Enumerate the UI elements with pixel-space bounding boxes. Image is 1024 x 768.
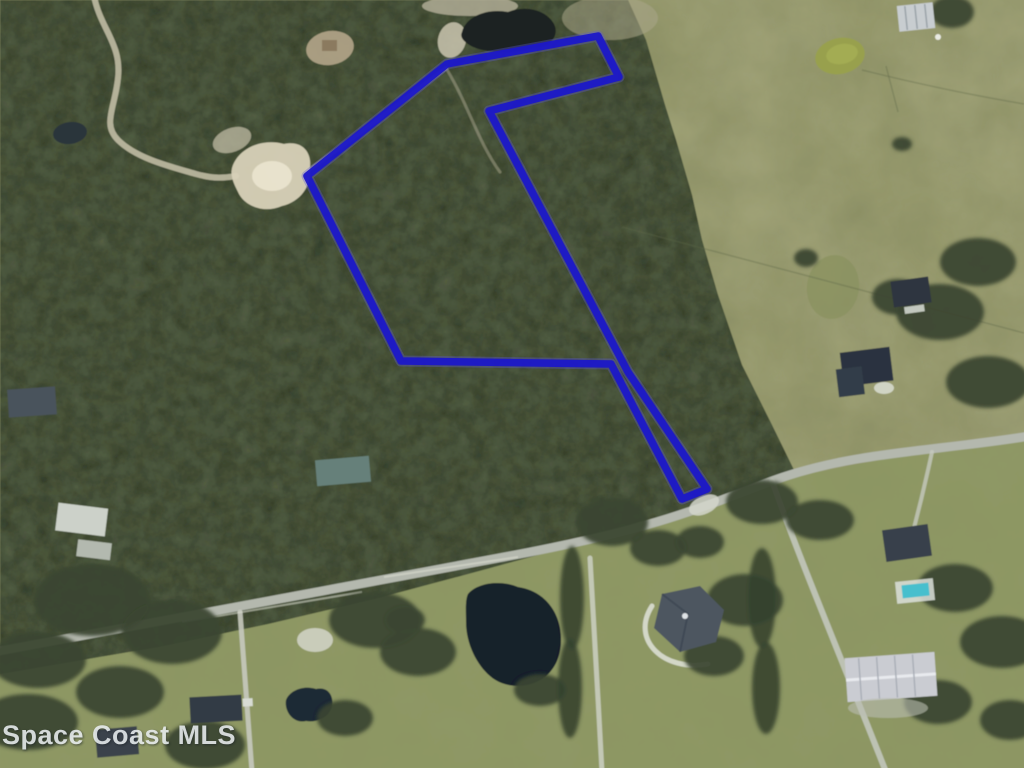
metal-roof-building [897,2,936,32]
shed-roof [322,40,337,51]
house-roof [315,456,371,487]
mls-aerial-map-screenshot: Space Coast MLS [0,0,1024,768]
house-roof [7,386,57,417]
warehouse-building [845,652,938,702]
sand-bright-spot [252,161,292,191]
terrain [0,0,1024,768]
satellite-image [0,0,1024,768]
house-roof [882,524,932,562]
white-object [935,34,941,40]
driveway-apron [297,628,333,652]
watermark-space-coast-mls: Space Coast MLS [2,720,236,751]
gravel-apron [848,698,928,718]
skylight [682,613,688,619]
driveway-pad [874,382,894,394]
